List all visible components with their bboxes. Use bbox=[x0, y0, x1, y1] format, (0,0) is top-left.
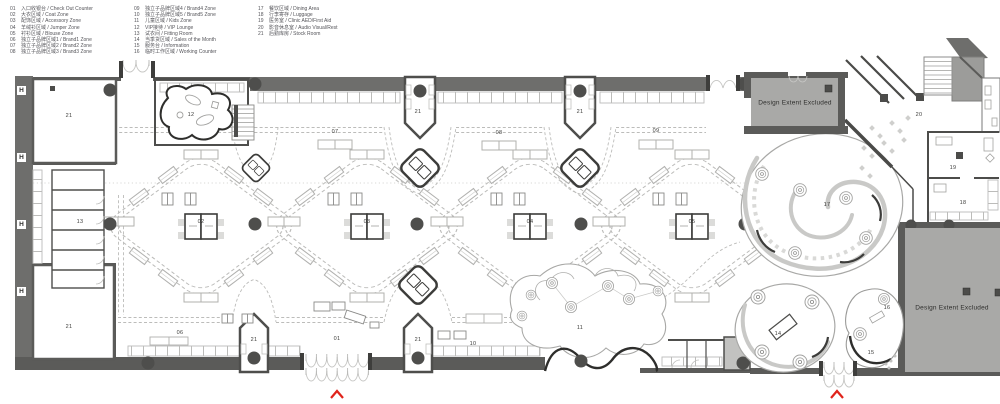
fitting-rooms bbox=[52, 170, 104, 288]
entrance-arrow-icon bbox=[331, 391, 843, 398]
legend-item-label: 独立子品牌区域3 / Brand3 Zone bbox=[21, 49, 92, 55]
design-extent-box-1 bbox=[744, 70, 848, 134]
info-working-counter bbox=[846, 289, 904, 370]
design-extent-box-2 bbox=[905, 228, 1000, 372]
legend-item-label: 临时工作区域 / Working Counter bbox=[145, 49, 217, 55]
legend-column-2: 09 独立子品牌区域4 / Brand4 Zone 10 独立子品牌区域5 / … bbox=[134, 6, 246, 56]
floorplan-drawing bbox=[0, 0, 1000, 404]
legend-item: 21 后勤库房 / Stock Room bbox=[258, 31, 358, 37]
legend-item: 16 临时工作区域 / Working Counter bbox=[134, 49, 246, 55]
floorplan-page: 01 入口收银台 / Check Out Counter 02 大衣区域 / C… bbox=[0, 0, 1000, 404]
zone-06-10-01-fixtures bbox=[150, 302, 502, 345]
legend-item-label: 后勤库房 / Stock Room bbox=[269, 31, 320, 37]
legend-item-number: 16 bbox=[134, 49, 142, 55]
legend-column-1: 01 入口收银台 / Check Out Counter 02 大衣区域 / C… bbox=[10, 6, 122, 56]
legend: 01 入口收银台 / Check Out Counter 02 大衣区域 / C… bbox=[10, 6, 358, 56]
legend-column-3: 17 餐饮区域 / Dining Area 18 行李寄存 / Luggage … bbox=[258, 6, 358, 56]
legend-item-number: 08 bbox=[10, 49, 18, 55]
legend-item-number: 21 bbox=[258, 31, 266, 37]
legend-item: 08 独立子品牌区域3 / Brand3 Zone bbox=[10, 49, 122, 55]
dining-area bbox=[730, 121, 914, 289]
top-strip-tables bbox=[318, 140, 673, 150]
stock-room-top-left bbox=[33, 79, 116, 163]
